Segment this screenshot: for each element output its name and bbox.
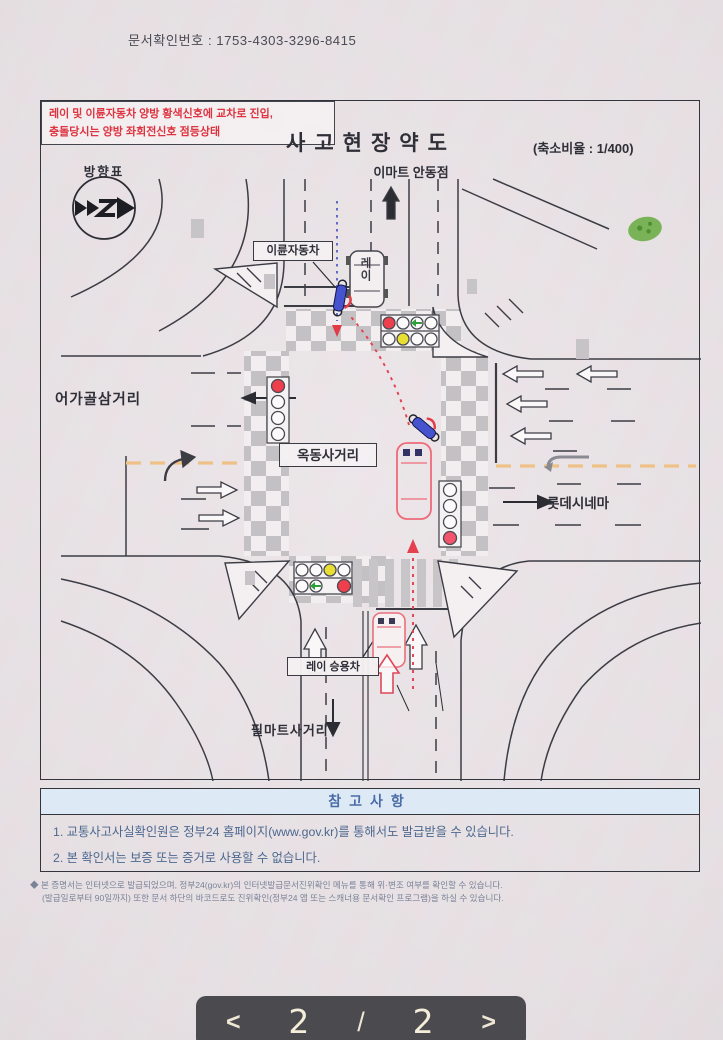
- north-straight-arrow: [383, 187, 399, 219]
- current-page-number: 2: [288, 1000, 309, 1040]
- traffic-signal-south: [294, 562, 352, 594]
- prev-page-button[interactable]: <: [226, 1000, 241, 1040]
- collision-point: [397, 408, 445, 519]
- ray-car-final-text: 레이: [357, 257, 373, 282]
- landmark-eogagol: 어가골삼거리: [55, 388, 141, 409]
- page-separator: /: [357, 1000, 365, 1040]
- traffic-signal-east: [439, 481, 461, 547]
- next-page-button[interactable]: >: [481, 1000, 496, 1040]
- landmark-okdong: 옥동사거리: [279, 443, 377, 467]
- diagram-title: 사고현장약도: [231, 127, 511, 157]
- ray-car-start: [373, 613, 405, 693]
- reference-note-item: 1. 교통사고사실확인원은 정부24 홈페이지(www.gov.kr)를 통해서…: [53, 819, 699, 845]
- page-navigation-bar: < 2 / 2 >: [196, 996, 526, 1040]
- scale-note: (축소비율 : 1/400): [533, 138, 634, 157]
- accident-scene-diagram: 사고현장약도 (축소비율 : 1/400) 이마트 안동점 방향표 이륜자동차 …: [40, 100, 700, 780]
- landmark-emart: 이마트 안동점: [331, 162, 491, 181]
- green-smudge: [626, 214, 664, 245]
- reference-notes-header: 참고사항: [41, 789, 699, 815]
- compass-icon: [73, 177, 135, 239]
- landmark-pilmart: 필마트사거리: [251, 720, 329, 739]
- doc-verification-number: 문서확인번호 : 1753-4303-3296-8415: [128, 30, 356, 49]
- verification-footnote: ◆ 본 증명서는 인터넷으로 발급되었으며, 정부24(gov.kr)의 인터넷…: [30, 879, 714, 905]
- reference-notes-body: 1. 교통사고사실확인원은 정부24 홈페이지(www.gov.kr)를 통해서…: [41, 815, 699, 871]
- traffic-signal-west: [267, 377, 289, 443]
- ray-car-label: 레이 승용차: [287, 657, 379, 676]
- footnote-line1: ◆ 본 증명서는 인터넷으로 발급되었으며, 정부24(gov.kr)의 인터넷…: [30, 879, 714, 892]
- reference-note-item: 2. 본 확인서는 보증 또는 증거로 사용할 수 없습니다.: [53, 845, 699, 871]
- landmark-lotte-cinema: 롯데시네마: [547, 492, 609, 512]
- document-photo: 문서확인번호 : 1753-4303-3296-8415: [0, 0, 723, 1040]
- intersection-drawing: [41, 101, 701, 781]
- total-page-number: 2: [413, 1000, 434, 1040]
- motorcycle-label: 이륜자동차: [253, 241, 333, 261]
- footnote-line2: (발급일로부터 90일까지) 또한 문서 하단의 바코드로도 진위확인(정부24…: [30, 892, 714, 905]
- reference-notes-section: 참고사항 1. 교통사고사실확인원은 정부24 홈페이지(www.gov.kr)…: [40, 788, 700, 872]
- compass-label: 방향표: [71, 161, 137, 180]
- traffic-signal-north: [381, 315, 439, 347]
